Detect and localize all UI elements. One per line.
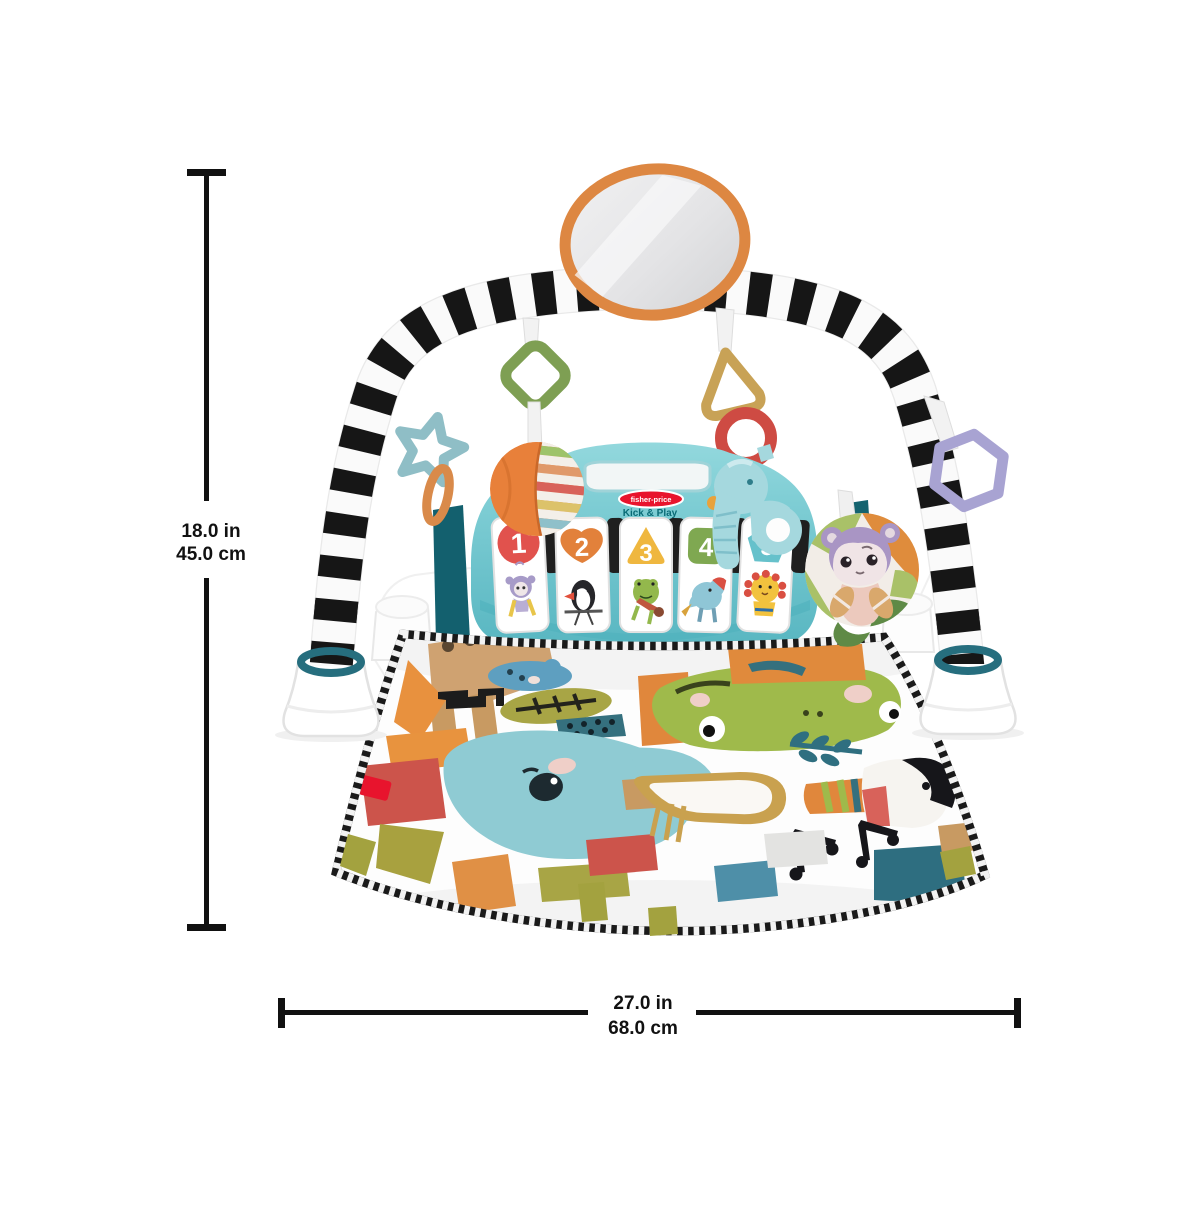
svg-text:45.0 cm: 45.0 cm <box>176 544 246 565</box>
svg-text:2: 2 <box>574 532 589 562</box>
svg-text:27.0 in: 27.0 in <box>613 993 672 1014</box>
svg-text:18.0 in: 18.0 in <box>181 521 240 542</box>
svg-text:4: 4 <box>699 532 715 562</box>
svg-text:3: 3 <box>639 540 652 567</box>
svg-text:fisher-price: fisher-price <box>631 495 672 504</box>
svg-text:68.0 cm: 68.0 cm <box>608 1018 678 1039</box>
